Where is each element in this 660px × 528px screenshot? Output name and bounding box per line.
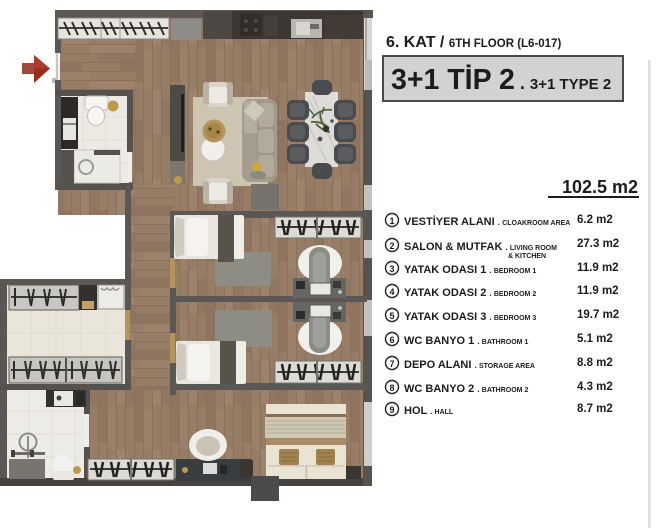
svg-text:5: 5	[389, 311, 394, 321]
svg-text:6: 6	[389, 335, 394, 345]
svg-text:27.3 m2: 27.3 m2	[577, 238, 619, 250]
svg-text:11.9 m2: 11.9 m2	[577, 285, 619, 297]
svg-text:11.9 m2: 11.9 m2	[577, 262, 619, 274]
svg-text:8.8 m2: 8.8 m2	[577, 357, 613, 369]
svg-text:8: 8	[389, 383, 394, 393]
svg-text:3: 3	[389, 264, 394, 274]
svg-text:4: 4	[389, 287, 394, 297]
svg-text:6.2 m2: 6.2 m2	[577, 214, 613, 226]
svg-text:& KITCHEN: & KITCHEN	[508, 253, 546, 260]
svg-text:8.7 m2: 8.7 m2	[577, 403, 613, 415]
svg-text:19.7 m2: 19.7 m2	[577, 309, 619, 321]
svg-text:1: 1	[389, 216, 394, 226]
svg-text:2: 2	[389, 241, 394, 251]
svg-text:4.3 m2: 4.3 m2	[577, 381, 613, 393]
svg-text:5.1 m2: 5.1 m2	[577, 333, 613, 345]
svg-text:9: 9	[389, 405, 394, 415]
svg-text:102.5 m2: 102.5 m2	[562, 177, 638, 197]
svg-text:7: 7	[389, 359, 394, 369]
